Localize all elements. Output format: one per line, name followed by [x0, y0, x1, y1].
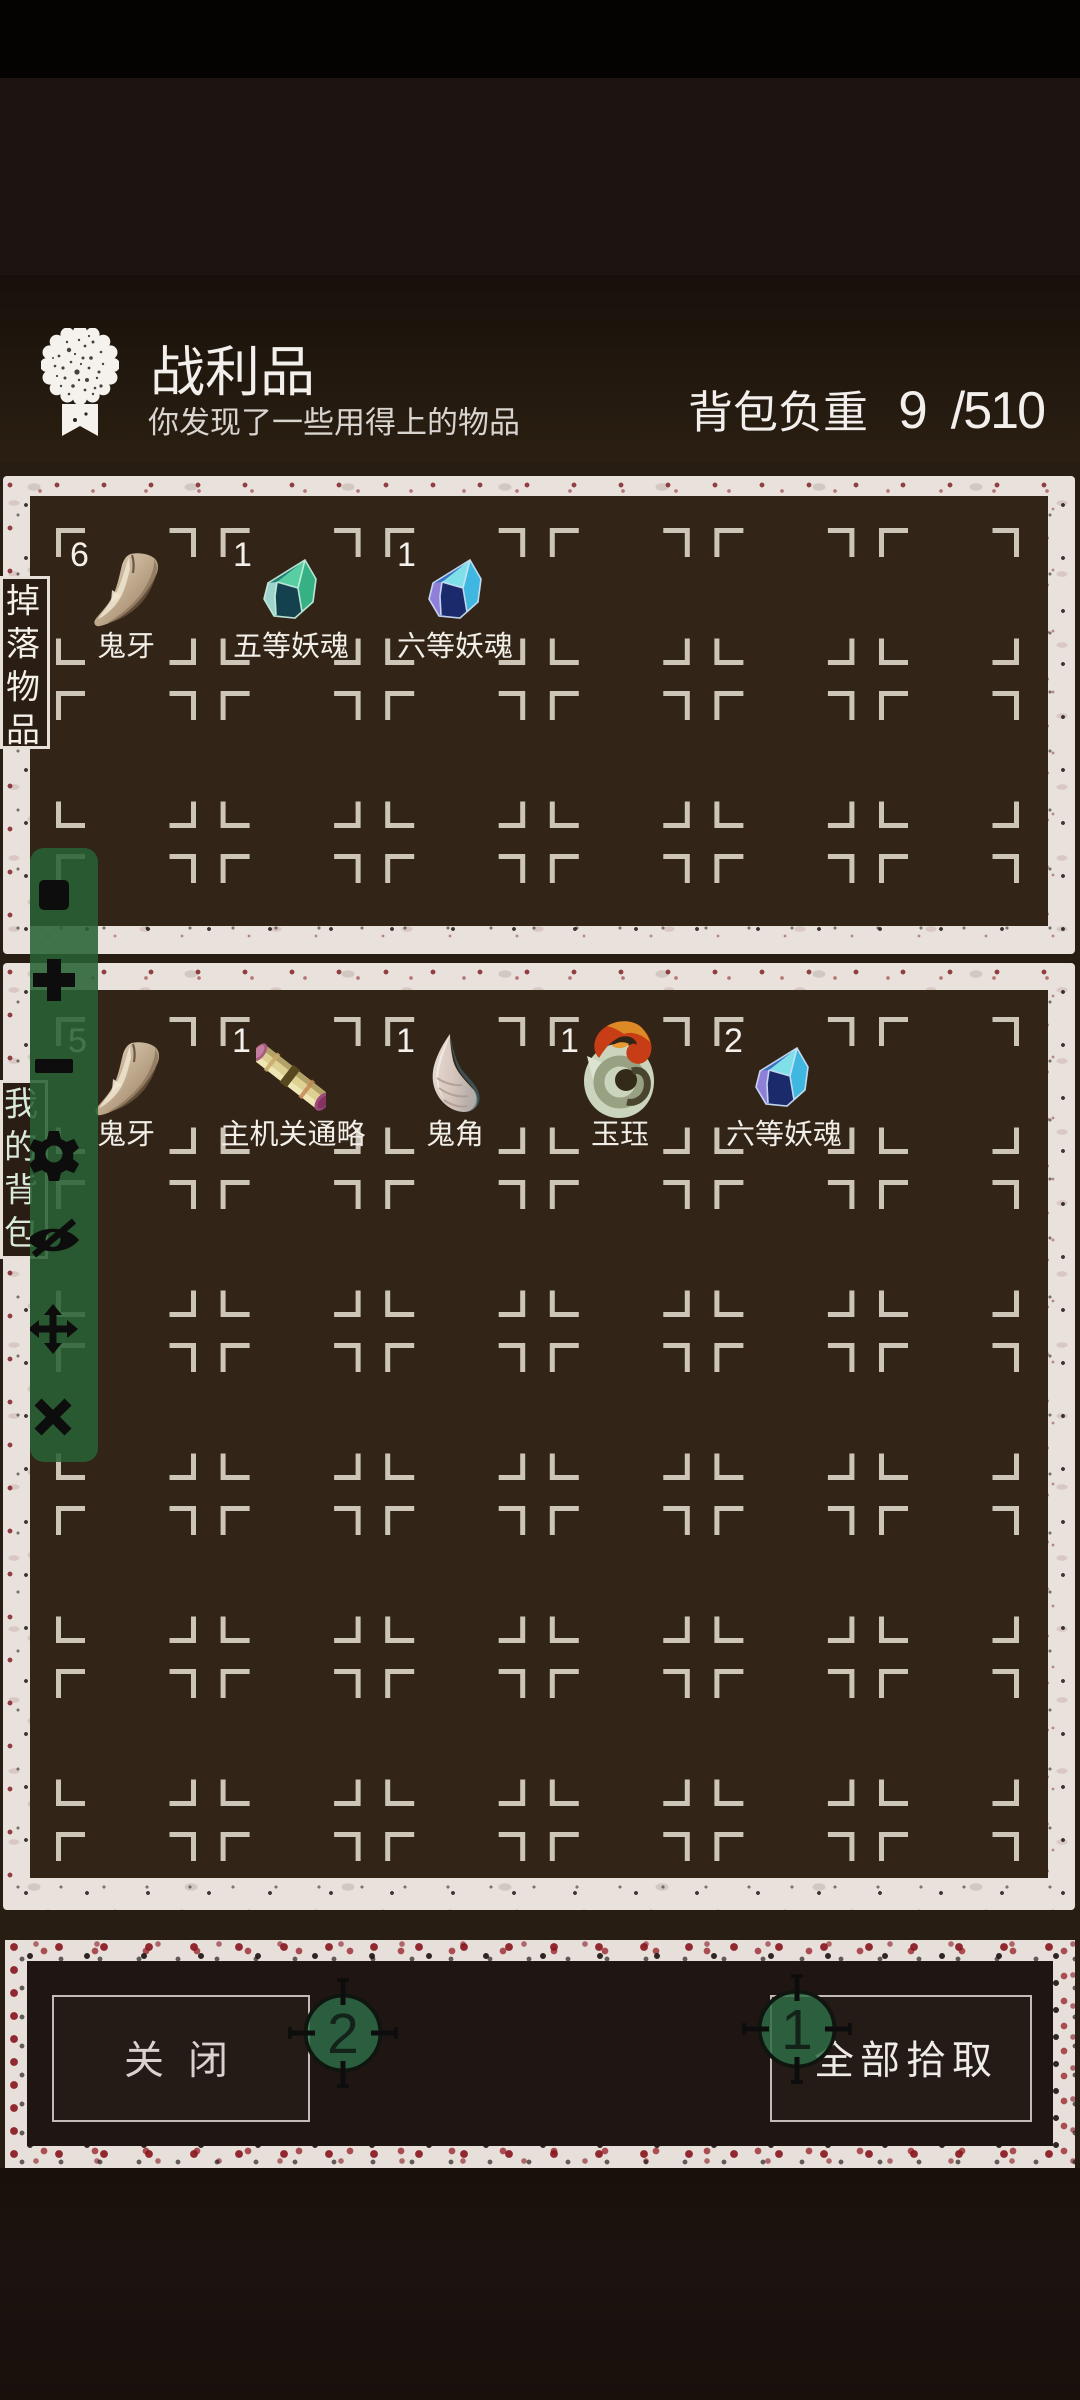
svg-text:1: 1 [396, 1022, 415, 1060]
svg-text:1: 1 [397, 536, 416, 574]
svg-text:9: 9 [898, 381, 927, 440]
svg-text:1: 1 [233, 536, 252, 574]
svg-text:1: 1 [781, 1998, 813, 2062]
svg-text:2: 2 [724, 1022, 743, 1060]
svg-text:6: 6 [70, 536, 89, 574]
svg-text:1: 1 [232, 1022, 251, 1060]
svg-text:/510: /510 [951, 382, 1044, 440]
svg-text:1: 1 [560, 1022, 579, 1060]
svg-text:2: 2 [327, 2002, 359, 2066]
